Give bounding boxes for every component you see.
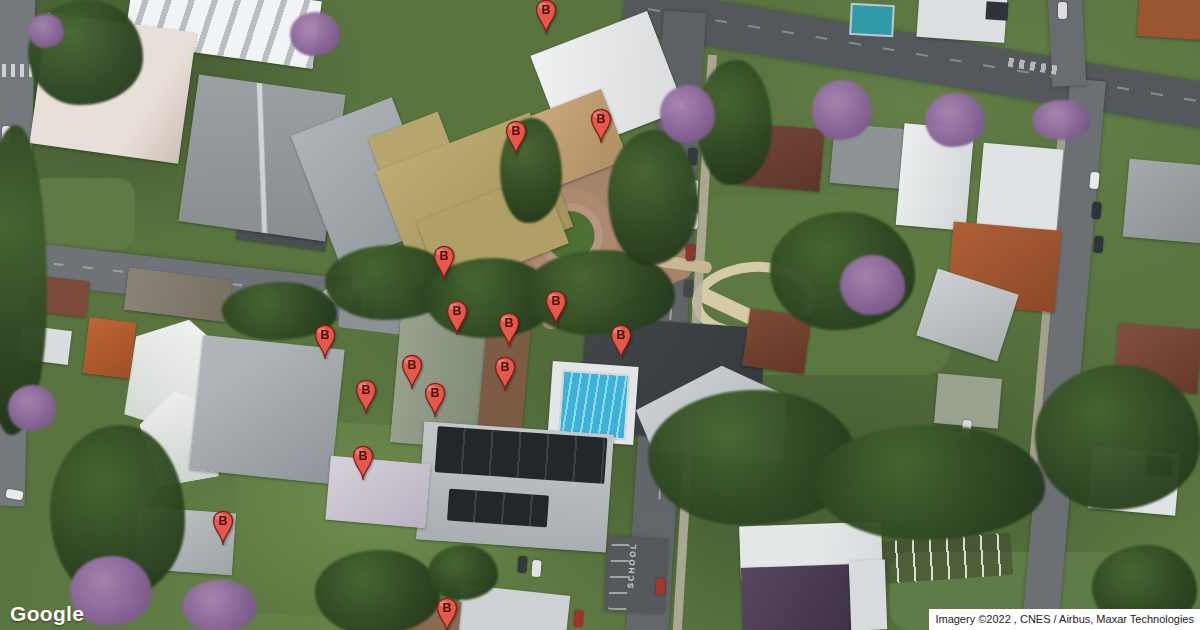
- map-pin-marker[interactable]: B: [436, 596, 459, 630]
- tree-canopy: [1035, 365, 1200, 510]
- map-pin-marker[interactable]: B: [355, 378, 378, 419]
- svg-text:B: B: [442, 601, 451, 615]
- car: [517, 556, 527, 574]
- map-pin-marker[interactable]: B: [610, 323, 633, 364]
- pin-icon: B: [401, 353, 424, 390]
- car: [1093, 236, 1103, 254]
- jacaranda-tree: [812, 80, 872, 140]
- building-roof-purple: [741, 564, 851, 630]
- car: [684, 280, 694, 297]
- swimming-pool: [558, 370, 630, 441]
- car: [573, 610, 583, 628]
- pin-icon: B: [433, 244, 456, 281]
- svg-text:B: B: [511, 124, 520, 138]
- svg-text:B: B: [551, 294, 560, 308]
- map-pin-marker[interactable]: B: [352, 444, 375, 485]
- map-pin-marker[interactable]: B: [433, 244, 456, 285]
- house-roof-orange: [1137, 0, 1200, 40]
- backyard-pool: [849, 3, 895, 37]
- svg-text:B: B: [596, 112, 605, 126]
- jacaranda-tree: [925, 93, 985, 147]
- tree-canopy: [428, 545, 498, 600]
- svg-text:B: B: [218, 514, 227, 528]
- tree-canopy: [383, 88, 458, 160]
- tree-canopy: [315, 550, 440, 630]
- car: [655, 578, 665, 596]
- pin-icon: B: [498, 311, 521, 348]
- tree-canopy: [742, 195, 822, 260]
- imagery-attribution: Imagery ©2022 , CNES / Airbus, Maxar Tec…: [929, 609, 1200, 630]
- pin-icon: B: [535, 0, 558, 35]
- pin-icon: B: [436, 596, 459, 630]
- crosswalk-stripes: [2, 64, 32, 77]
- google-logo: Google: [10, 602, 84, 626]
- map-pin-marker[interactable]: B: [212, 509, 235, 550]
- jacaranda-tree: [290, 12, 340, 56]
- map-pin-marker[interactable]: B: [494, 355, 517, 396]
- map-pin-marker[interactable]: B: [446, 299, 469, 340]
- tree-canopy: [1135, 55, 1200, 120]
- jacaranda-tree: [1032, 100, 1090, 140]
- map-canvas[interactable]: SCHOOL B B: [0, 0, 1200, 630]
- car: [531, 560, 541, 578]
- car: [1058, 2, 1067, 19]
- map-pin-marker[interactable]: B: [505, 119, 528, 160]
- pin-icon: B: [494, 355, 517, 392]
- car: [1091, 202, 1101, 220]
- map-pin-marker[interactable]: B: [401, 353, 424, 394]
- pin-icon: B: [424, 381, 447, 418]
- jacaranda-tree: [28, 14, 64, 48]
- pin-icon: B: [545, 289, 568, 326]
- map-pin-marker[interactable]: B: [498, 311, 521, 352]
- pin-icon: B: [590, 107, 613, 144]
- pin-icon: B: [446, 299, 469, 336]
- map-pin-marker[interactable]: B: [545, 289, 568, 330]
- pin-icon: B: [355, 378, 378, 415]
- svg-text:B: B: [407, 358, 416, 372]
- tree-canopy: [470, 262, 525, 302]
- map-pin-marker[interactable]: B: [590, 107, 613, 148]
- pin-icon: B: [212, 509, 235, 546]
- map-pin-marker[interactable]: B: [424, 381, 447, 422]
- house-roof-orange: [83, 317, 136, 378]
- map-pin-marker[interactable]: B: [535, 0, 558, 39]
- building-roof-lavender: [325, 456, 430, 528]
- pin-icon: B: [314, 323, 337, 360]
- jacaranda-tree: [8, 385, 56, 431]
- building-roof-white: [849, 559, 887, 630]
- jacaranda-tree: [840, 255, 905, 315]
- svg-text:B: B: [430, 386, 439, 400]
- jacaranda-tree: [660, 85, 715, 143]
- svg-text:B: B: [541, 3, 550, 17]
- svg-text:B: B: [616, 328, 625, 342]
- tree-canopy: [608, 130, 698, 265]
- house-roof-gray: [1123, 159, 1200, 244]
- svg-text:B: B: [452, 304, 461, 318]
- jacaranda-tree: [182, 580, 257, 630]
- svg-text:B: B: [361, 383, 370, 397]
- tree-canopy: [350, 256, 410, 301]
- svg-text:B: B: [439, 249, 448, 263]
- svg-text:B: B: [358, 449, 367, 463]
- pin-icon: B: [352, 444, 375, 481]
- pin-icon: B: [610, 323, 633, 360]
- solar-panel-array: [985, 1, 1008, 20]
- pin-icon: B: [505, 119, 528, 156]
- grass-patch: [30, 178, 135, 250]
- svg-text:B: B: [320, 328, 329, 342]
- tree-canopy: [900, 328, 1015, 416]
- car: [1089, 172, 1099, 190]
- svg-text:B: B: [500, 360, 509, 374]
- map-pin-marker[interactable]: B: [314, 323, 337, 364]
- tree-canopy: [815, 425, 1045, 540]
- car: [686, 244, 696, 261]
- svg-text:B: B: [504, 316, 513, 330]
- solar-panel-array: [447, 489, 549, 528]
